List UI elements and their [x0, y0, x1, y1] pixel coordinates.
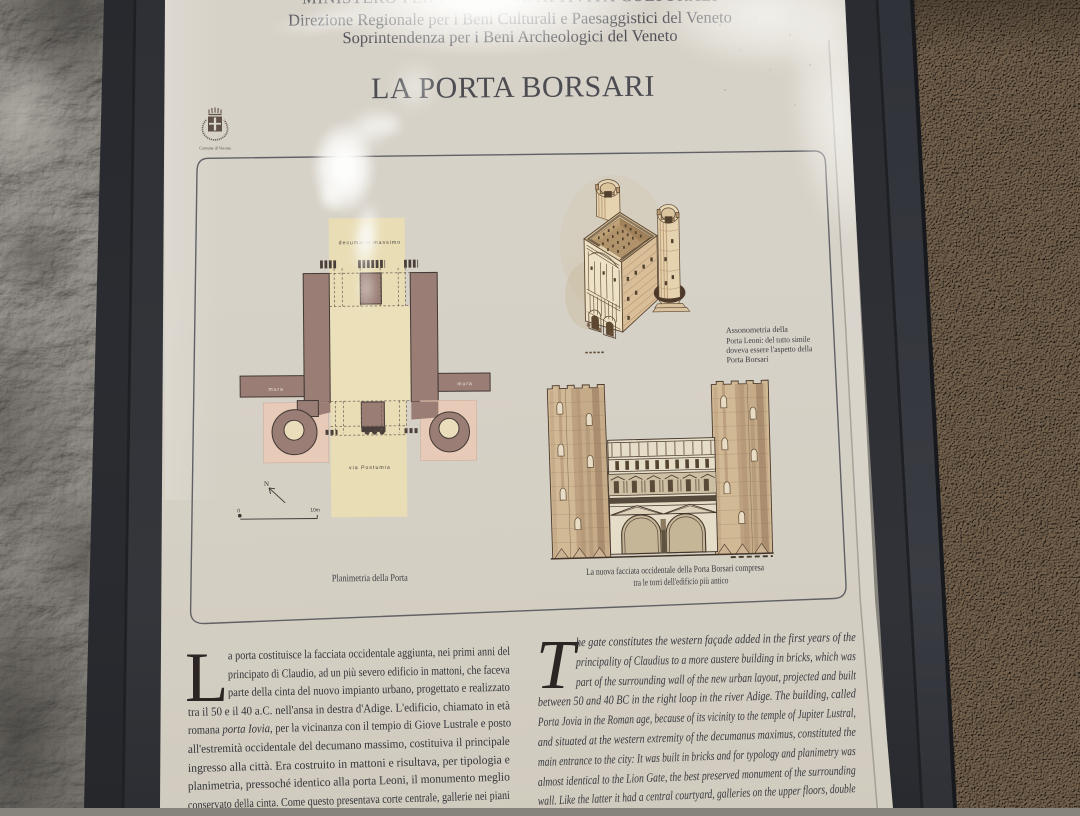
svg-text:via Postumia: via Postumia — [349, 465, 391, 471]
svg-text:La nuova facciata occidentale: La nuova facciata occidentale della Port… — [586, 562, 765, 578]
svg-text:0: 0 — [237, 508, 240, 514]
svg-text:tra le torri dell'edificio più: tra le torri dell'edificio più antico — [633, 575, 728, 588]
svg-text:10m: 10m — [310, 507, 320, 513]
svg-text:N: N — [264, 480, 269, 488]
svg-text:Porta Borsari: Porta Borsari — [726, 355, 769, 365]
svg-text:mura: mura — [457, 381, 472, 387]
svg-text:Assonometria della: Assonometria della — [726, 325, 789, 335]
svg-text:doveva essere l'aspetto della: doveva essere l'aspetto della — [726, 344, 813, 355]
svg-text:mura: mura — [268, 387, 283, 393]
svg-text:Planimetria della Porta: Planimetria della Porta — [332, 573, 409, 585]
